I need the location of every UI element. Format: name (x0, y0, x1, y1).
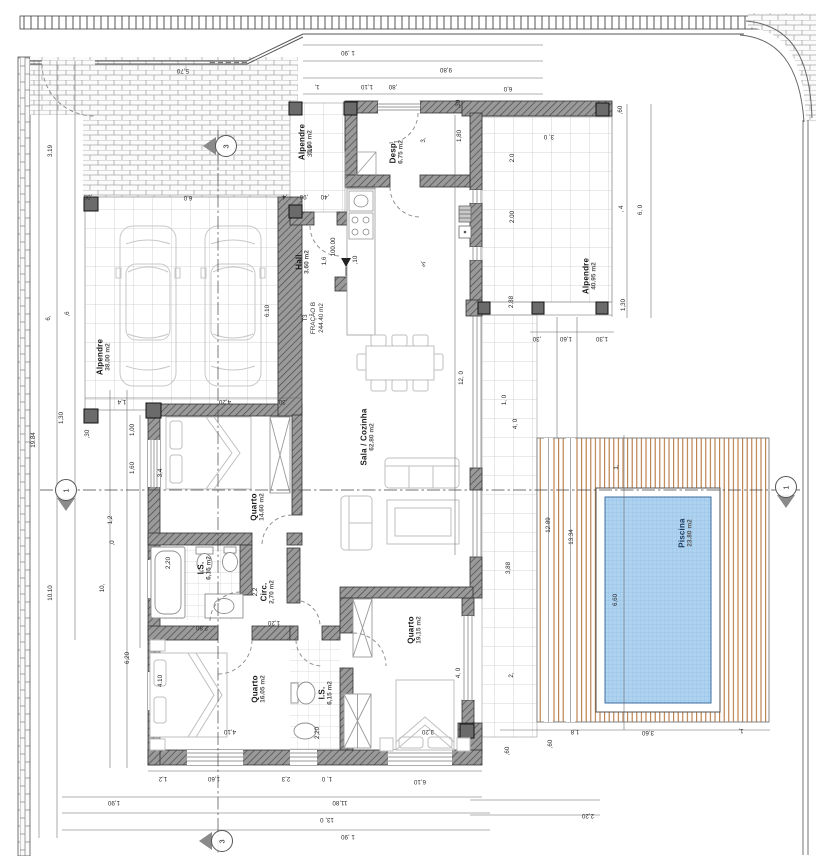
coffee-table (395, 508, 451, 536)
kitchen-sink (349, 191, 373, 211)
bidet (223, 553, 238, 572)
washbasin (214, 599, 234, 614)
floor-plan: T3 FRAÇÃO B 244.40 m2 Alpendre38.00 m2Al… (0, 0, 816, 856)
plan-drawing (0, 0, 816, 856)
pool-area (537, 438, 769, 722)
dining-table (366, 346, 434, 380)
washbasin-2 (294, 723, 316, 739)
carport (85, 197, 278, 410)
stove (349, 213, 373, 239)
pool-water (605, 497, 711, 703)
sofa (385, 458, 459, 488)
toilet-2 (297, 682, 315, 704)
toilet (197, 554, 212, 573)
